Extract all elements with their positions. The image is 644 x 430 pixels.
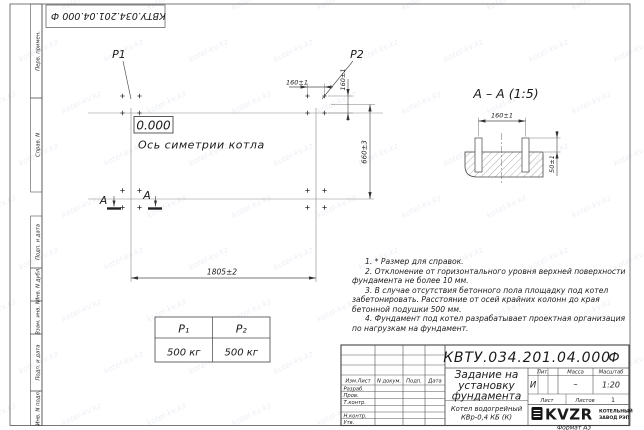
drawing-sheet: kotel-kv.kzkotel-kv.kzkotel-kv.kzkotel-k… — [0, 0, 644, 430]
title-block: КВТУ.034.201.04.000 Ф Изм.Лист N докум. … — [341, 345, 633, 426]
kvzr-logo-icon — [532, 407, 543, 420]
col-header-podp: Подп. — [406, 379, 422, 385]
note-1: 1. * Размер для справок. — [352, 257, 630, 267]
section-dim-spacing: 160±1 — [491, 112, 513, 120]
margin-label: Подп. и дата — [36, 344, 42, 380]
margin-label: Инв. N дубл. — [36, 267, 42, 302]
rotated-doc-number: КВТУ.034.201.04.000 — [62, 10, 165, 21]
scale-value: 1:20 — [602, 381, 620, 390]
load-table-header-p2: Р₂ — [236, 323, 248, 336]
col-header-data: Дата — [427, 379, 441, 385]
sig-row-prov: Пров. — [344, 393, 359, 399]
dim-row-distance: 660±3 — [361, 140, 369, 164]
section-view: А – А (1:5) 160±1 50±1 — [465, 86, 561, 183]
margin-label: Перв. примен. — [36, 31, 42, 71]
sheet-label: Лист — [539, 398, 554, 404]
p1-leader-line — [123, 61, 131, 99]
sheets-value: 1 — [611, 397, 615, 404]
elevation-value: 0.000 — [136, 119, 171, 133]
load-table: Р₁ Р₂ 500 кг 500 кг — [155, 317, 270, 362]
drawing-canvas: КВТУ.034.201.04.000 Ф Перв. примен. Спра… — [0, 0, 644, 430]
lit-value: И — [530, 381, 537, 391]
margin-label: Взам. инв. N — [36, 300, 42, 334]
sheets-label: Листов — [574, 398, 594, 404]
product-name-line1: Котел водогрейный — [451, 405, 523, 413]
load-table-value-p2: 500 кг — [224, 348, 258, 359]
product-name-line2: КВр-0,4 КБ (К) — [461, 414, 512, 422]
plan-view: P1 P2 160±1 160±1 660±3 18 — [88, 48, 383, 282]
load-table-value-p1: 500 кг — [167, 348, 201, 359]
notes-block: 1. * Размер для справок. 2. Отклонение о… — [352, 257, 630, 334]
doc-number: КВТУ.034.201.04.000 — [443, 350, 611, 366]
margin-label: Подп. и дата — [36, 224, 42, 260]
load-table-header-p1: Р₁ — [178, 323, 189, 336]
format-label: Формат А3 — [557, 425, 591, 430]
scale-header: Масштаб — [599, 370, 624, 376]
dim-bolt-spacing-h: 160±1 — [286, 79, 308, 87]
note-3: 3. В случае отсутствия бетонного пола пл… — [352, 286, 630, 315]
logo-caption-line2: ЗАВОД РЭП — [599, 415, 630, 421]
section-letter-a1: А — [99, 194, 108, 207]
sig-row-tkontr: Т.контр. — [344, 400, 366, 406]
p1-load-label: P1 — [112, 48, 126, 61]
note-2: 2. Отклонение от горизонтального уровня … — [352, 267, 630, 286]
boiler-axis-label: Ось симетрии котла — [138, 139, 265, 152]
dim-column-distance: 1805±2 — [207, 268, 237, 277]
section-dim-protrusion: 50±1 — [548, 155, 556, 173]
margin-column: Перв. примен. Справ. N Подп. и дата Инв.… — [31, 4, 43, 426]
kvzr-logo-text: KVZR — [545, 406, 593, 424]
section-letter-a2: А — [142, 189, 151, 202]
dim-bolt-spacing-v: 160±1 — [339, 69, 347, 91]
mass-value: – — [573, 380, 577, 390]
sig-row-utv: Утв. — [344, 420, 355, 426]
lit-header: Лит. — [536, 370, 549, 376]
p2-load-label: P2 — [350, 48, 364, 61]
margin-label: Инв. N подл. — [36, 391, 42, 426]
rotated-doc-suffix: Ф — [51, 10, 59, 21]
drawing-title-line3: фундамента — [452, 391, 522, 403]
anchor-bolt-section-right — [522, 138, 529, 172]
sig-row-razrab: Разраб. — [344, 387, 364, 393]
sig-row-nkontr: Н.контр. — [344, 413, 367, 419]
doc-suffix: Ф — [608, 351, 619, 366]
margin-label: Справ. N — [36, 133, 42, 157]
col-header-izm-list: Изм.Лист — [345, 379, 371, 385]
col-header-n-dokum: N докум. — [377, 379, 401, 385]
section-title: А – А (1:5) — [472, 86, 538, 101]
note-4: 4. Фундамент под котел разрабатывает про… — [352, 314, 630, 333]
anchor-bolt-section-left — [475, 138, 482, 172]
mass-header: Масса — [567, 370, 584, 376]
